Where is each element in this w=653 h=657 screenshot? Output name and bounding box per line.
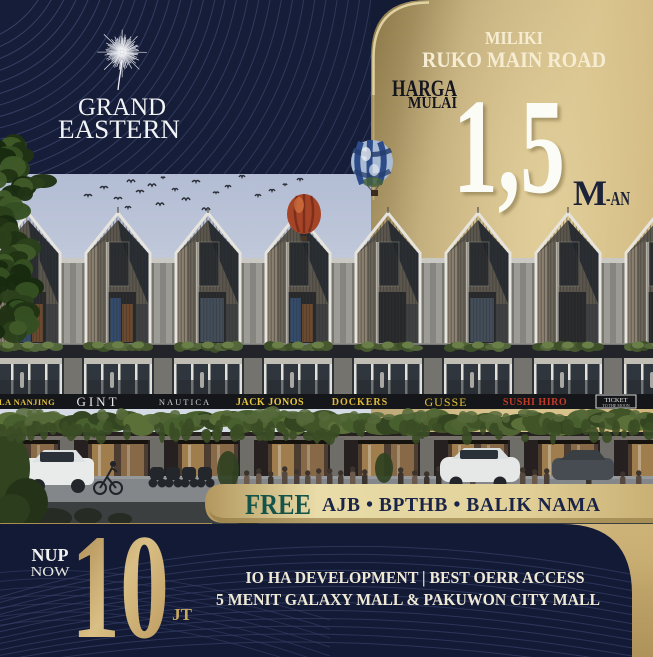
svg-text:1,5: 1,5 (453, 72, 565, 222)
svg-text:RUKO MAIN ROAD: RUKO MAIN ROAD (422, 47, 606, 72)
svg-text:GUSSE: GUSSE (424, 395, 467, 409)
svg-text:M: M (573, 173, 607, 213)
svg-text:JACK JONOS: JACK JONOS (236, 397, 304, 408)
svg-text:NOW: NOW (31, 564, 70, 579)
svg-text:IO HA DEVELOPMENT | BEST OERR: IO HA DEVELOPMENT | BEST OERR ACCESS (246, 568, 585, 587)
svg-text:SUSHI HIRO: SUSHI HIRO (503, 397, 567, 408)
svg-text:TO THE MOON: TO THE MOON (602, 403, 629, 408)
svg-text:NAUTICA: NAUTICA (159, 397, 211, 407)
svg-text:DOCKERS: DOCKERS (332, 397, 388, 408)
svg-text:5 MENIT GALAXY MALL & PAKUWON: 5 MENIT GALAXY MALL & PAKUWON CITY MALL (216, 590, 600, 609)
svg-text:FREE: FREE (245, 490, 311, 521)
svg-text:JT: JT (172, 605, 193, 624)
svg-text:AJB • BPTHB • BALIK NAMA: AJB • BPTHB • BALIK NAMA (322, 495, 600, 516)
svg-text:LA NANJING: LA NANJING (0, 397, 55, 407)
svg-text:MULAI: MULAI (408, 93, 457, 112)
svg-text:GINT: GINT (76, 394, 119, 409)
svg-text:MILIKI: MILIKI (485, 28, 543, 48)
svg-text:NUP: NUP (32, 545, 69, 565)
svg-text:10: 10 (71, 504, 169, 657)
svg-text:-AN: -AN (606, 188, 630, 210)
svg-text:EASTERN: EASTERN (58, 115, 180, 144)
